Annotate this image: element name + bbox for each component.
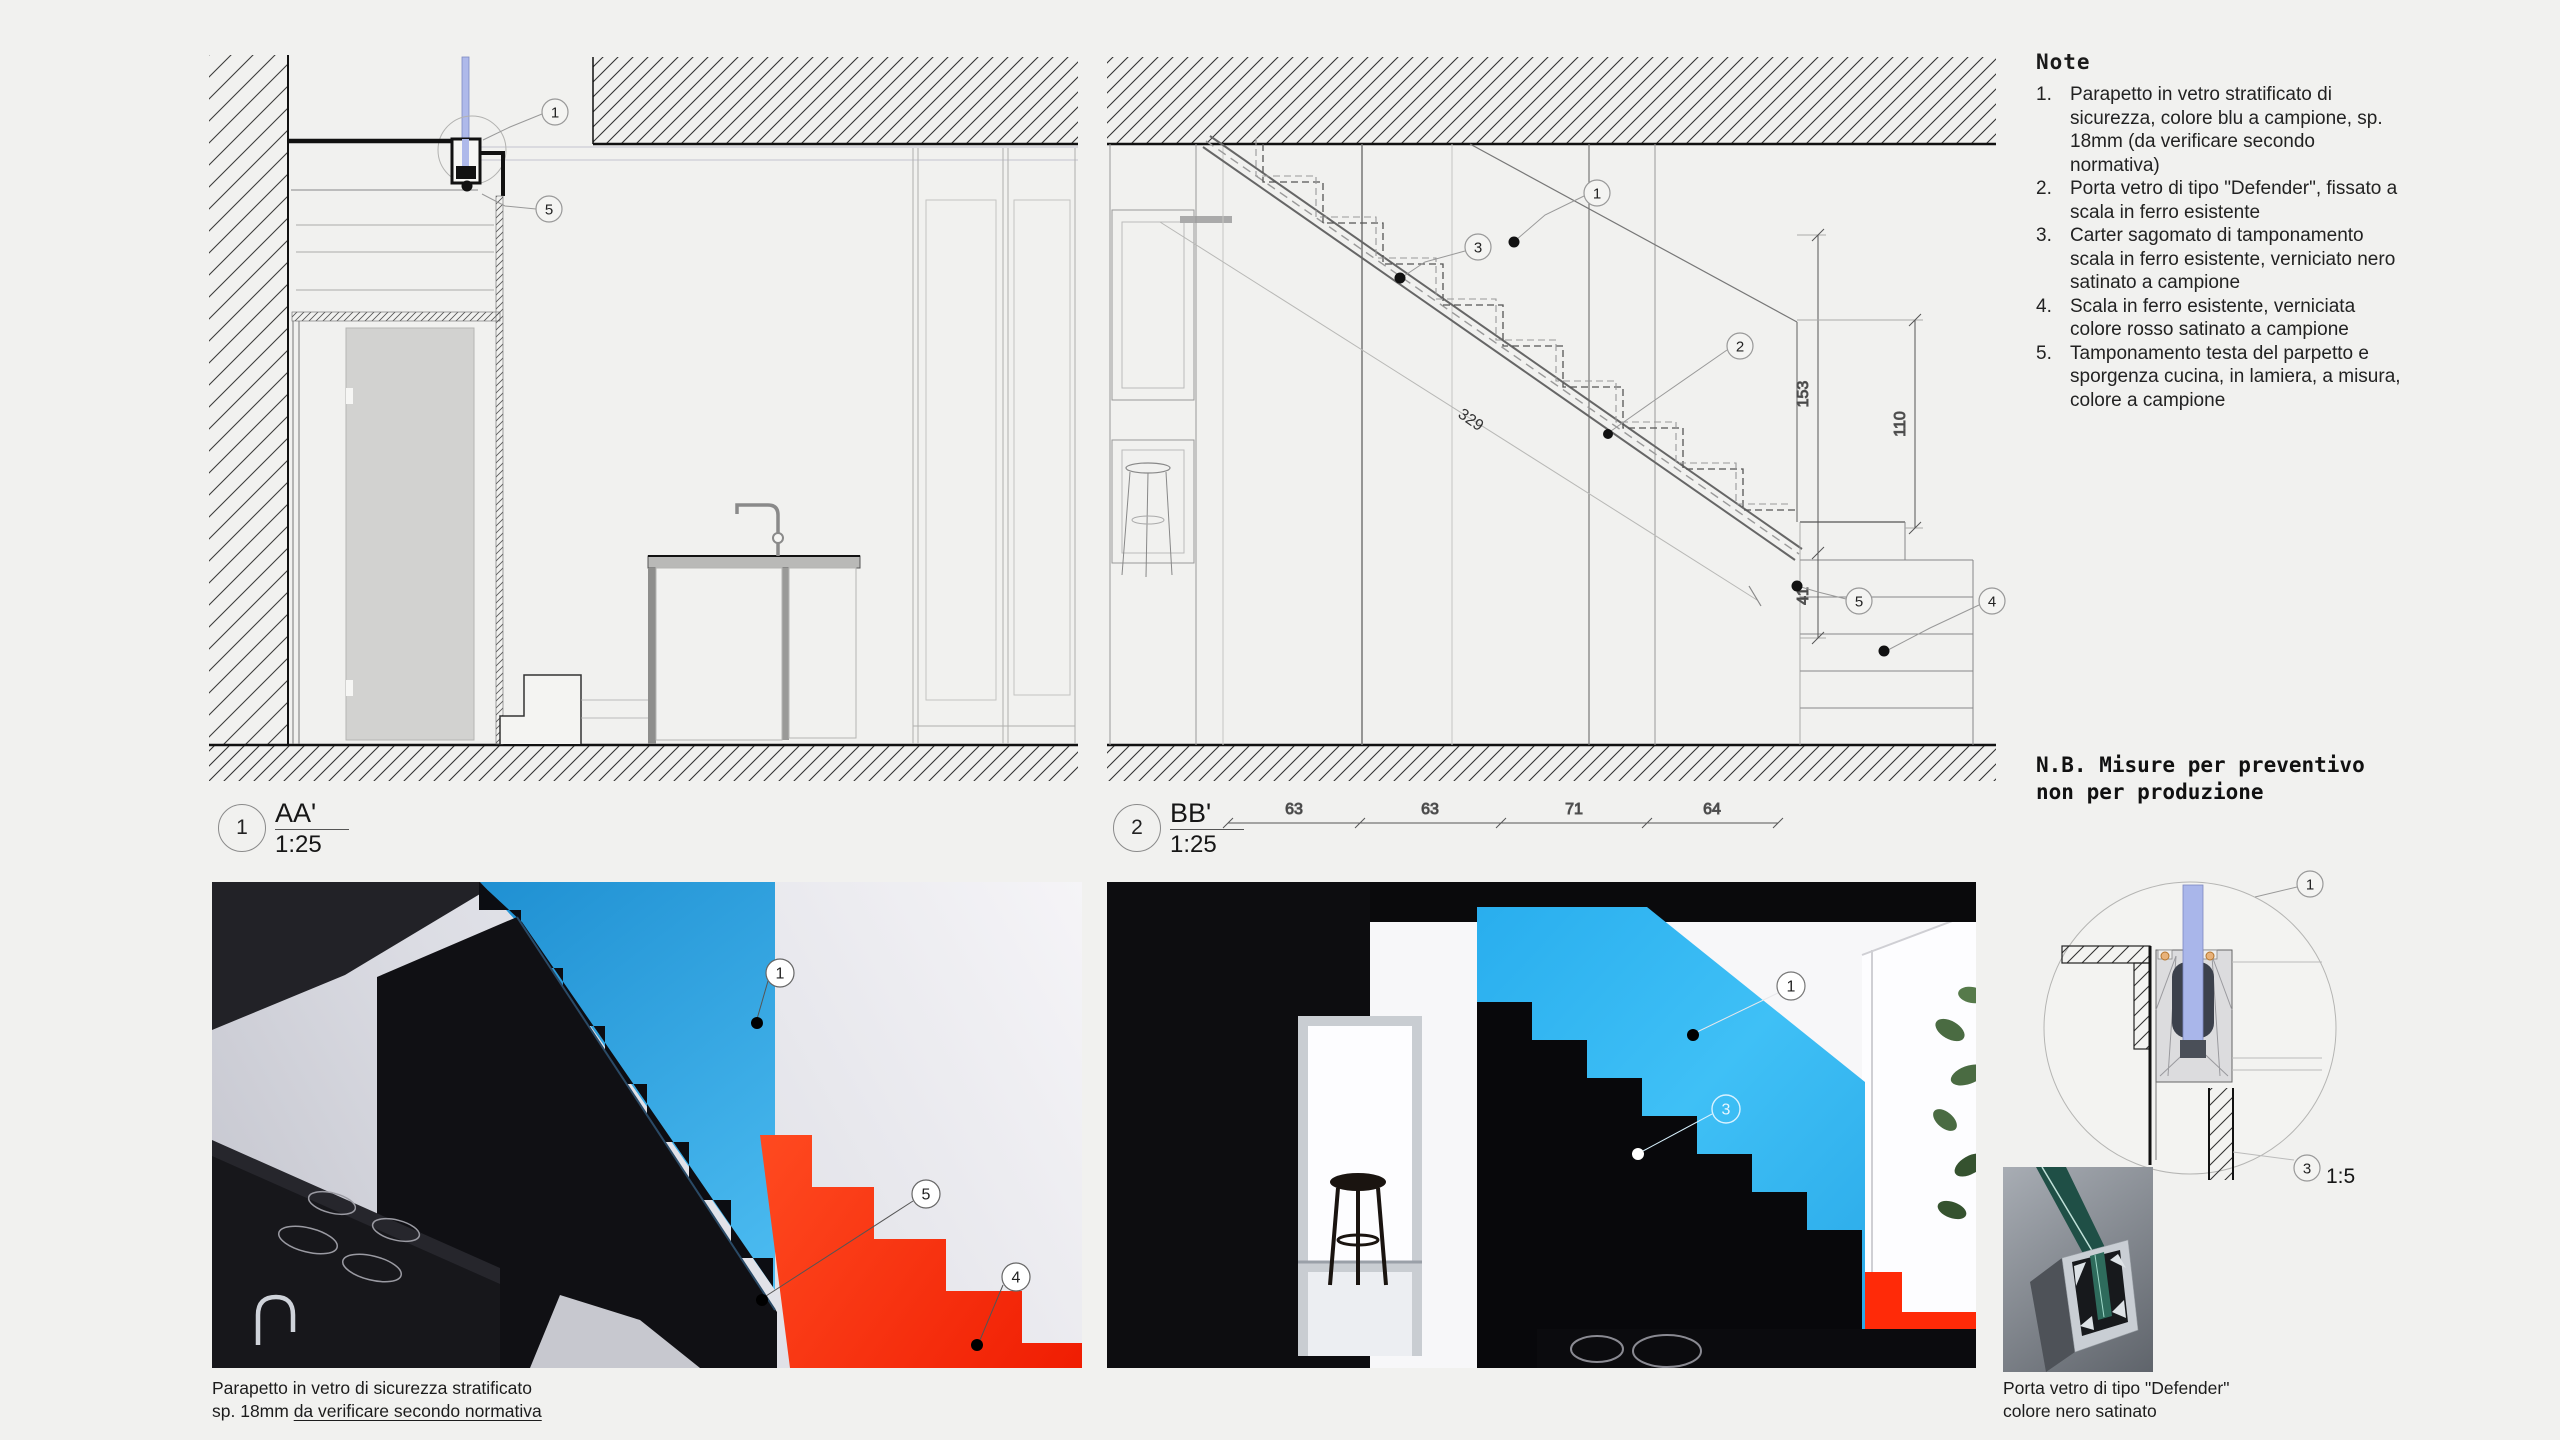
product-caption: Porta vetro di tipo "Defender" colore ne…	[2003, 1377, 2403, 1423]
nb-disclaimer: N.B. Misure per preventivo non per produ…	[2036, 752, 2365, 806]
section-number: 2	[1131, 816, 1143, 840]
section-scale: 1:25	[275, 832, 349, 858]
callout-3-number: 3	[1722, 1102, 1731, 1119]
callout-1-number: 1	[776, 966, 785, 983]
drawing-sheet: { "sheet": { "bg": "#f1f1ef", "line_colo…	[0, 0, 2560, 1440]
stair-stringer	[1203, 136, 1802, 560]
note-item-4: 4. Scala in ferro esistente, verniciata …	[2036, 295, 2408, 342]
note-number: 5.	[2036, 342, 2070, 413]
photo1-caption: Parapetto in vetro di sicurezza stratifi…	[212, 1377, 692, 1423]
callout-1-number: 1	[551, 105, 559, 122]
caption-underlined: da verificare secondo normativa	[294, 1401, 542, 1421]
product-photo-defender	[2003, 1167, 2153, 1372]
note-number: 2.	[2036, 177, 2070, 224]
callout-5-aa: 5	[482, 194, 562, 222]
detail-drawing: 1 3 1:5	[2044, 871, 2355, 1188]
caption-line-1: Porta vetro di tipo "Defender"	[2003, 1377, 2403, 1400]
dim-chain-bottom: 63 63 71 64	[1223, 801, 1783, 828]
note-text: Carter sagomato di tamponamento scala in…	[2070, 224, 2408, 295]
stair-first-steps	[500, 675, 581, 744]
nb-line-1: N.B. Misure per preventivo	[2036, 752, 2365, 779]
note-item-3: 3. Carter sagomato di tamponamento scala…	[2036, 224, 2408, 295]
callout-1-number: 1	[2306, 877, 2314, 894]
caption-line-1: Parapetto in vetro di sicurezza stratifi…	[212, 1377, 692, 1400]
sheet-metal-side	[496, 196, 503, 744]
existing-stair-elevation	[1800, 522, 1973, 745]
note-number: 1.	[2036, 83, 2070, 177]
ceiling-hatch	[1107, 57, 1996, 144]
section-label-aa: 1 AA' 1:25	[218, 804, 349, 858]
note-text: Tamponamento testa del parpetto e sporge…	[2070, 342, 2408, 413]
dim-153-label: 153	[1795, 381, 1812, 408]
kitchen-island	[648, 505, 860, 744]
section-number: 1	[236, 816, 248, 840]
notes-panel: Note 1. Parapetto in vetro stratificato …	[2036, 50, 2408, 412]
window-and-stool	[1110, 144, 1232, 745]
section-name: AA'	[275, 798, 349, 828]
wall-hatch	[2062, 946, 2150, 963]
caption-line-2: sp. 18mm da verificare secondo normativa	[212, 1400, 692, 1423]
callout-5-number: 5	[1855, 594, 1863, 611]
callout-3-number: 3	[1474, 240, 1482, 257]
callout-1-number: 1	[1593, 186, 1601, 203]
section-name: BB'	[1170, 798, 1244, 828]
wall-hatch	[209, 55, 288, 745]
ceiling-hatch	[593, 57, 1078, 144]
dim-63b-label: 63	[1421, 801, 1439, 818]
faucet	[737, 505, 778, 556]
dim-110-label: 110	[1892, 411, 1909, 437]
note-item-1: 1. Parapetto in vetro stratificato di si…	[2036, 83, 2408, 177]
callout-5-number: 5	[545, 202, 553, 219]
detail-number: 3	[2303, 1161, 2311, 1178]
caption-line-2: colore nero satinato	[2003, 1400, 2403, 1423]
callout-2-bb: 2	[1603, 333, 1753, 439]
note-text: Parapetto in vetro stratificato di sicur…	[2070, 83, 2408, 177]
nb-line-2: non per produzione	[2036, 779, 2365, 806]
floor-hatch	[1107, 745, 1996, 781]
detail-scale: 1:5	[2326, 1165, 2355, 1188]
callout-2-number: 2	[1736, 339, 1744, 356]
callout-1-number: 1	[1787, 979, 1796, 996]
section-bb-drawing: 153 110 41 329 63 63 71	[1107, 57, 2005, 828]
callout-1-bb: 1	[1509, 180, 1611, 248]
callout-4-bb: 4	[1879, 588, 2006, 657]
note-number: 3.	[2036, 224, 2070, 295]
render-photo-1: 1 5 4	[212, 882, 1082, 1368]
callout-4-number: 4	[1012, 1270, 1021, 1287]
note-number: 4.	[2036, 295, 2070, 342]
caption-prefix: sp. 18mm	[212, 1401, 294, 1421]
dim-71-label: 71	[1565, 801, 1583, 818]
note-item-5: 5. Tamponamento testa del parpetto e spo…	[2036, 342, 2408, 413]
wall-panelling	[913, 148, 1075, 744]
callout-1-aa: 1	[483, 99, 568, 140]
dim-329-label: 329	[1455, 406, 1487, 435]
lower-wall-hatch	[2209, 1088, 2233, 1180]
dim-153: 153	[1795, 229, 1826, 559]
glass-blade	[2183, 885, 2203, 1057]
section-scale: 1:25	[1170, 832, 1244, 858]
callout-dot	[462, 181, 473, 192]
detail-label: 3 1:5	[2294, 1155, 2355, 1188]
label-divider	[1170, 829, 1244, 830]
section-label-bb: 2 BB' 1:25	[1113, 804, 1244, 858]
note-text: Porta vetro di tipo "Defender", fissato …	[2070, 177, 2408, 224]
callout-4-number: 4	[1988, 594, 1996, 611]
floor-hatch	[209, 745, 1078, 781]
dim-110: 110	[1797, 314, 1923, 534]
label-divider	[275, 829, 349, 830]
callout-5-number: 5	[922, 1187, 931, 1204]
note-text: Scala in ferro esistente, verniciata col…	[2070, 295, 2408, 342]
direction-line	[1160, 222, 1757, 600]
dim-63a-label: 63	[1285, 801, 1303, 818]
render-photo-2: 1 3	[1107, 882, 1989, 1368]
callout-1-detail: 1	[2255, 871, 2323, 897]
section-number-badge: 2	[1113, 804, 1161, 852]
section-number-badge: 1	[218, 804, 266, 852]
section-aa-drawing: 1 5	[209, 55, 1078, 781]
notes-title: Note	[2036, 50, 2408, 74]
sheet-metal-cap	[292, 312, 500, 321]
appliance-block	[346, 328, 474, 740]
dim-64-label: 64	[1703, 801, 1721, 818]
note-item-2: 2. Porta vetro di tipo "Defender", fissa…	[2036, 177, 2408, 224]
